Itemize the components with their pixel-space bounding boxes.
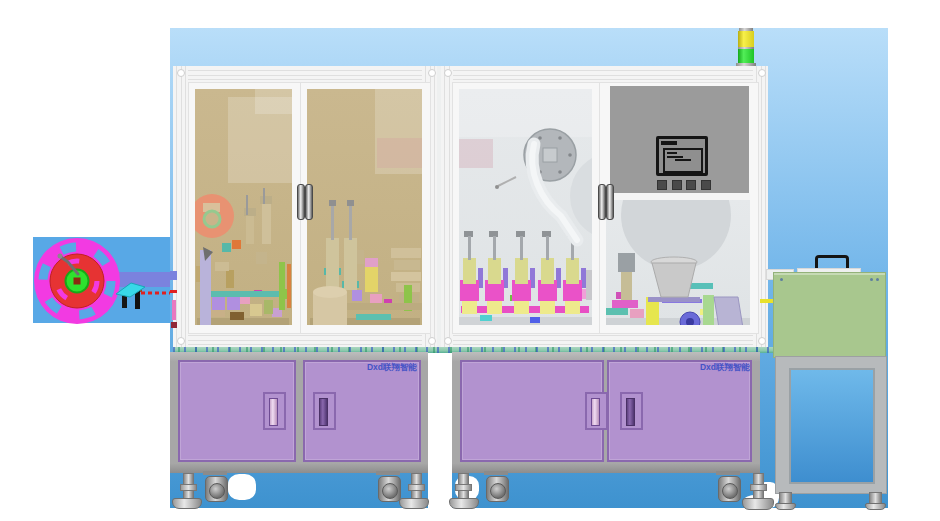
left-door-handle-a <box>297 184 305 220</box>
foot-pad <box>172 498 202 509</box>
brand-label-right: Dxd联翔智能 <box>688 362 750 373</box>
caster-wheel <box>722 483 738 499</box>
frame-hole <box>177 337 185 345</box>
cart-foot-pad <box>775 503 796 510</box>
left-window-1-glass <box>195 89 292 325</box>
stack-light <box>736 28 756 70</box>
right-top-rail <box>441 66 768 82</box>
screw-dot <box>780 278 783 281</box>
hmi-button-3 <box>686 180 696 190</box>
foot-collar <box>408 484 425 491</box>
right-door-handle-a <box>598 184 606 220</box>
stack-light-green-segment <box>738 49 754 64</box>
foot-pad <box>449 498 479 509</box>
screw-dot <box>870 278 873 281</box>
cart-green-box <box>773 272 886 358</box>
monitor-text-line <box>667 152 677 154</box>
left-door-handle-b <box>305 184 313 220</box>
caster-wheel <box>209 483 225 499</box>
cart-foot-pad <box>865 503 886 510</box>
hmi-button-4 <box>701 180 711 190</box>
handle-bar <box>626 398 635 426</box>
glass-reflection <box>459 89 592 137</box>
left-window-2-glass <box>307 89 422 325</box>
right-window-2-glass <box>606 200 750 325</box>
caster <box>205 476 228 502</box>
frame-hole <box>758 69 766 77</box>
caster <box>486 476 509 502</box>
handle-bar <box>319 398 328 426</box>
screw-dot <box>876 278 879 281</box>
glass-pink-patch <box>377 138 422 168</box>
left-outer-post <box>173 66 188 347</box>
cart-blue-panel <box>789 368 875 484</box>
hmi-button-2 <box>672 180 682 190</box>
brand-label-left: Dxd联翔智能 <box>355 362 417 373</box>
frame-hole <box>428 337 436 345</box>
right-door-2-divider <box>606 193 750 200</box>
handle-bar <box>269 398 278 426</box>
glass-pink-patch <box>459 139 493 168</box>
foot-pad <box>399 498 429 509</box>
frame-hole <box>758 337 766 345</box>
hmi-monitor <box>656 136 708 176</box>
frame-hole <box>444 69 452 77</box>
right-window-1-glass <box>459 89 592 325</box>
monitor-text-line <box>675 159 691 161</box>
caster-plate <box>716 471 740 475</box>
floor-highlight <box>228 474 256 500</box>
foot-collar <box>455 484 472 491</box>
foot-collar <box>180 484 197 491</box>
monitor-text-line <box>667 156 683 158</box>
caster-plate <box>376 471 400 475</box>
cabinet-handle <box>263 392 286 430</box>
frame-hole <box>444 337 452 345</box>
foot-collar <box>750 484 767 491</box>
reel-backdrop <box>33 237 170 323</box>
caster-plate <box>203 471 227 475</box>
frame-hole <box>428 69 436 77</box>
cad-render-stage: Dxd联翔智能 Dxd联翔智能 <box>0 0 940 521</box>
caster-plate <box>484 471 508 475</box>
cabinet-handle <box>585 392 608 430</box>
cabinet-handle <box>313 392 336 430</box>
left-top-rail <box>173 66 437 82</box>
frame-hole <box>177 69 185 77</box>
caster <box>718 476 741 502</box>
cabinet-gap <box>428 353 452 508</box>
stack-light-yellow-segment <box>738 31 754 47</box>
cabinet-handle <box>620 392 643 430</box>
right-cabinet-door-1 <box>460 360 604 462</box>
glass-reflection <box>255 89 292 114</box>
foot-pad <box>742 498 774 510</box>
caster <box>378 476 401 502</box>
handle-bar <box>591 398 600 426</box>
caster-wheel <box>490 483 506 499</box>
right-door-handle-b <box>606 184 614 220</box>
hmi-button-1 <box>657 180 667 190</box>
caster-wheel <box>382 483 398 499</box>
monitor-title-bar <box>661 141 677 145</box>
